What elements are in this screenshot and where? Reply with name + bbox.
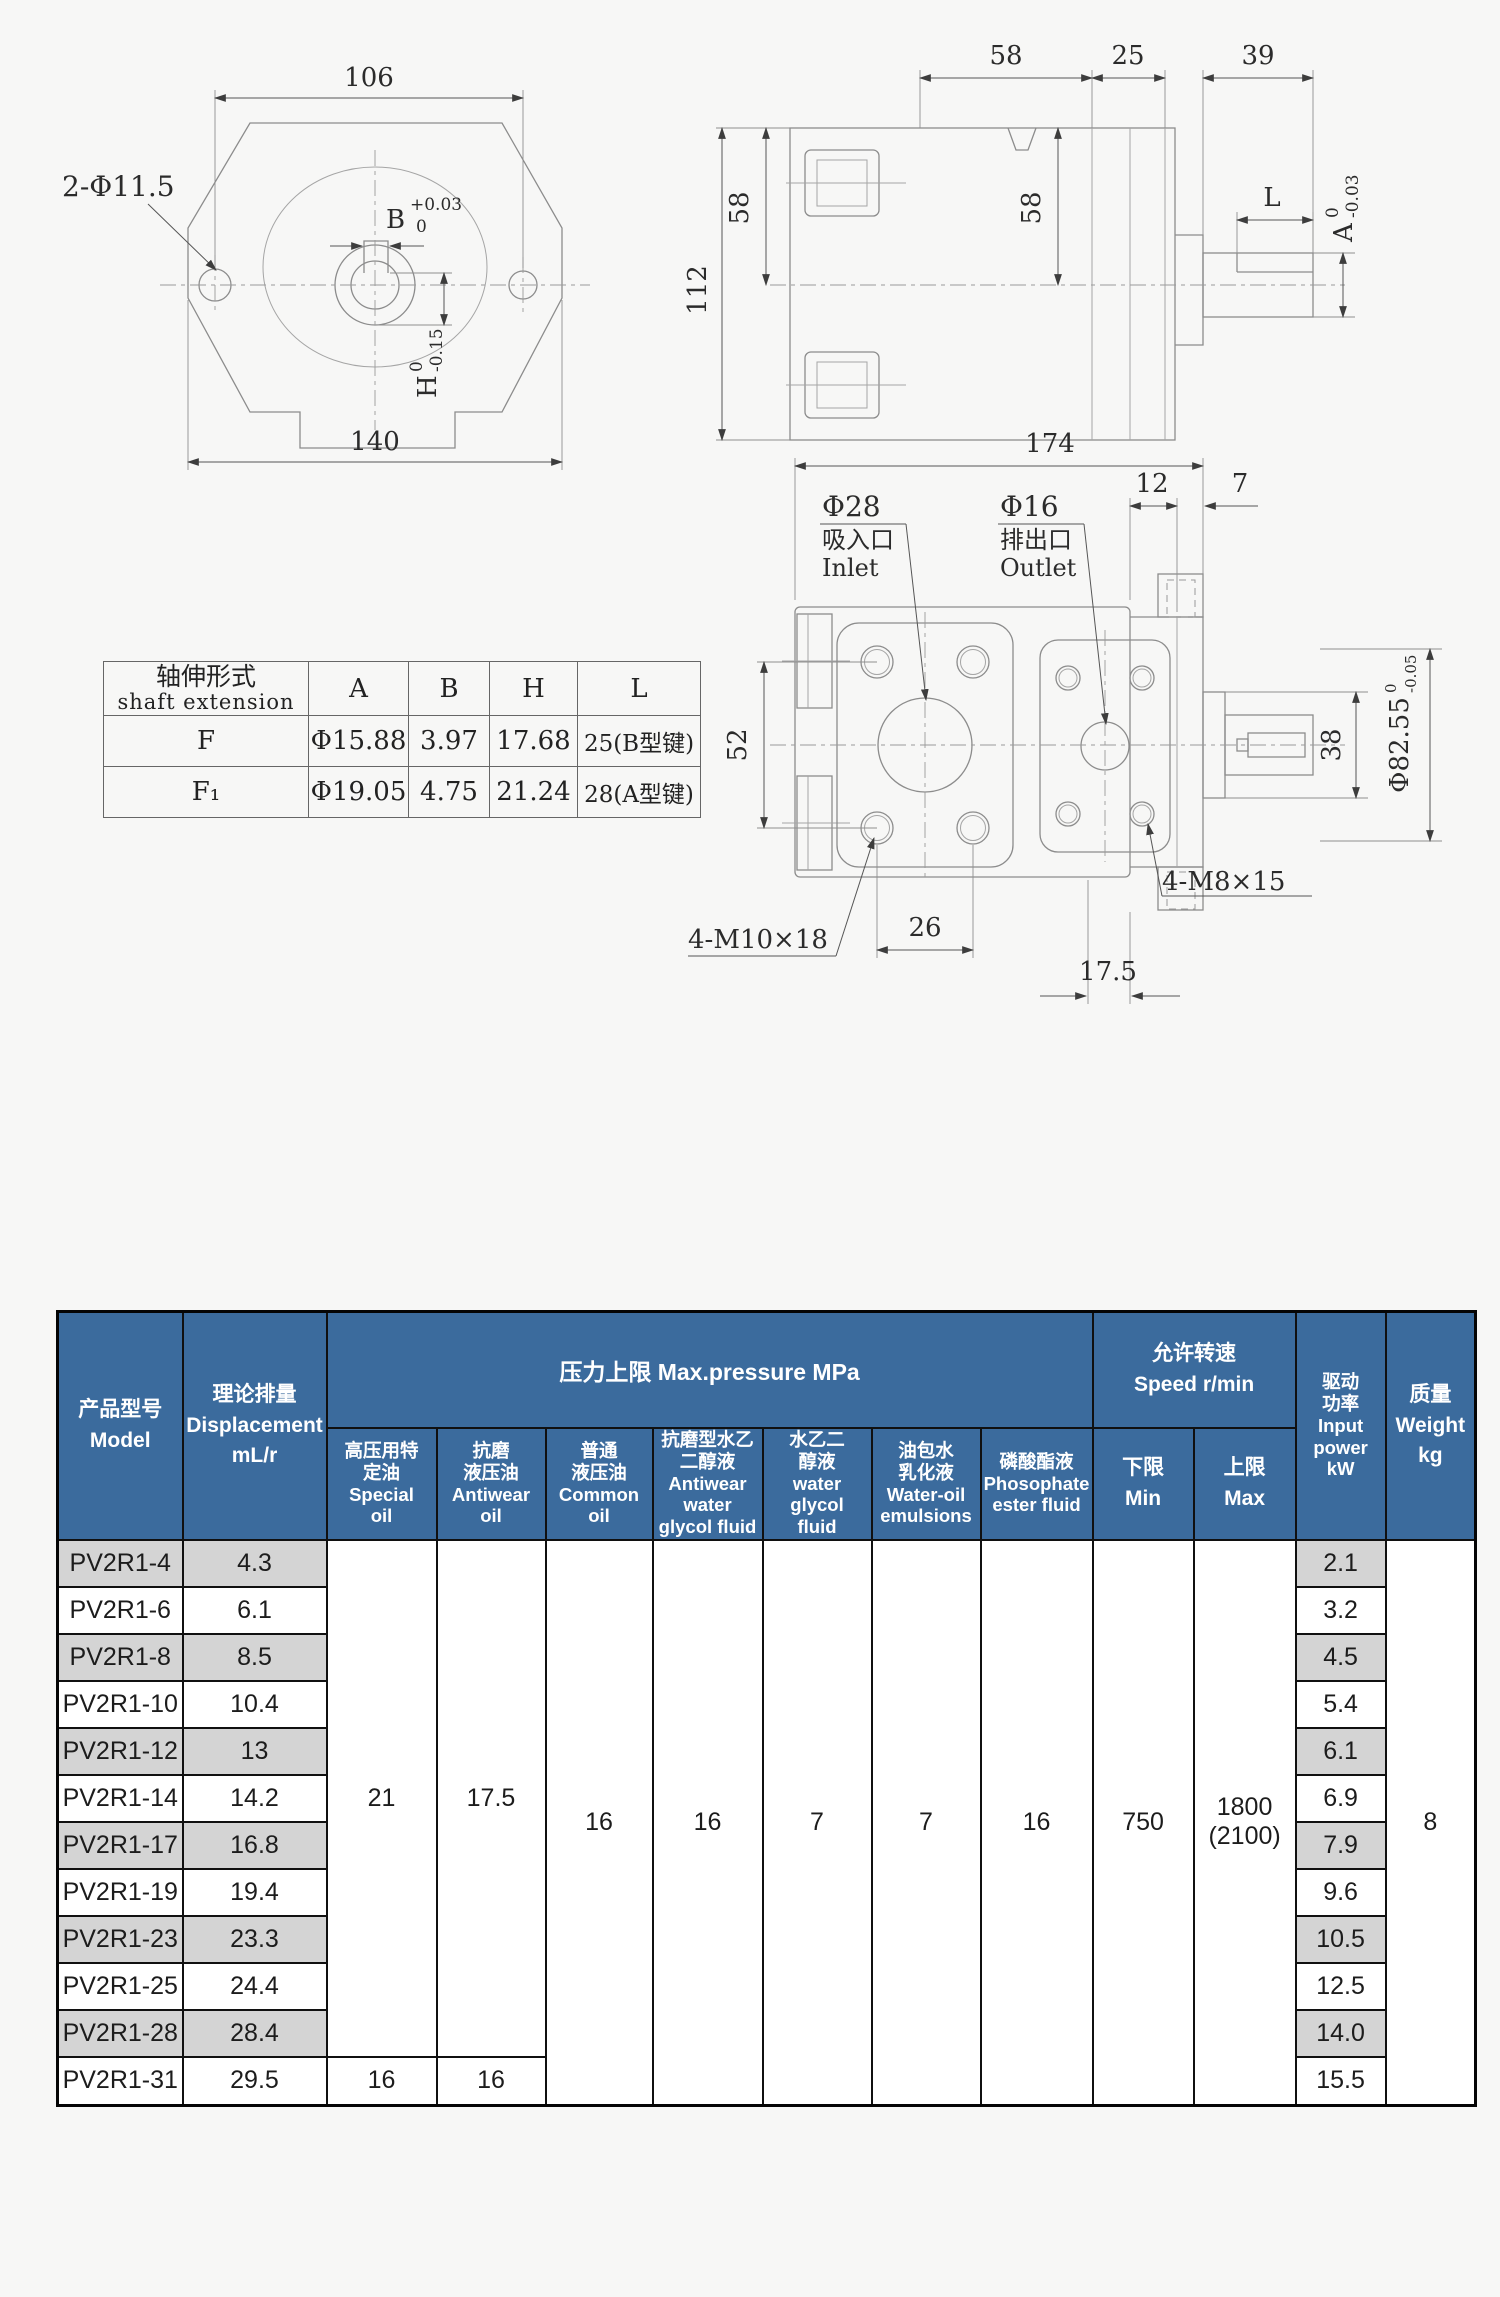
water-glycol-merged-cell: 7: [763, 1540, 872, 2106]
shaft-type: F: [104, 716, 309, 767]
power-cell: 4.5: [1296, 1634, 1386, 1681]
shaft-h: 17.68: [490, 716, 578, 767]
bottom-dim-spigot: Φ82.55: [1385, 697, 1415, 793]
front-dim-h: H: [413, 375, 443, 398]
weight-merged-cell: 8: [1386, 1540, 1476, 2106]
model-cell: PV2R1-25: [58, 1963, 183, 2010]
header-speed-min: 下限 Min: [1093, 1428, 1194, 1540]
shaft-title-cn: 轴伸形式: [104, 664, 308, 690]
side-view: 58 25 39 112 58 58 L: [683, 41, 1363, 440]
bottom-view-dimensions: 174 12 7 52 Φ28 吸入口 Inlet Φ16 排出口 Outlet: [688, 429, 1442, 1004]
header-model: 产品型号 Model: [58, 1312, 183, 1540]
side-dim-58-left: 58: [725, 191, 755, 224]
displacement-cell: 13: [183, 1728, 327, 1775]
header-water-oil: 油包水 乳化液 Water-oil emulsions: [872, 1428, 981, 1540]
side-dim-112: 112: [683, 265, 713, 315]
side-dim-58-right: 58: [1017, 191, 1047, 224]
model-cell: PV2R1-23: [58, 1916, 183, 1963]
bottom-dim-17-5: 17.5: [1079, 957, 1137, 987]
spec-header-row-1: 产品型号 Model 理论排量 Displacement mL/r 压力上限 M…: [58, 1312, 1476, 1428]
bottom-dim-12: 12: [1135, 469, 1168, 499]
front-dim-b-tol-top: +0.03: [410, 195, 462, 215]
header-power: 驱动 功率 Input power kW: [1296, 1312, 1386, 1540]
shaft-a: Φ19.05: [309, 767, 409, 818]
shaft-h: 21.24: [490, 767, 578, 818]
model-cell: PV2R1-31: [58, 2057, 183, 2106]
displacement-cell: 8.5: [183, 1634, 327, 1681]
power-cell: 6.1: [1296, 1728, 1386, 1775]
inlet-diameter: Φ28: [822, 490, 881, 523]
bottom-view-geometry: [770, 574, 1345, 910]
displacement-cell: 14.2: [183, 1775, 327, 1822]
displacement-cell: 28.4: [183, 2010, 327, 2057]
outlet-label-en: Outlet: [1000, 554, 1077, 582]
power-cell: 5.4: [1296, 1681, 1386, 1728]
bottom-view: 174 12 7 52 Φ28 吸入口 Inlet Φ16 排出口 Outlet: [688, 429, 1442, 1004]
shaft-b: 4.75: [409, 767, 490, 818]
bottom-dim-26: 26: [908, 913, 941, 943]
front-dim-h-tol-top: 0: [407, 361, 427, 372]
header-antiwear-glycol: 抗磨型水乙 二醇液 Antiwear water glycol fluid: [653, 1428, 763, 1540]
model-cell: PV2R1-12: [58, 1728, 183, 1775]
shaft-row-f: F Φ15.88 3.97 17.68 25(B型键): [104, 716, 701, 767]
shaft-l: 28(A型键): [578, 767, 701, 818]
model-cell: PV2R1-19: [58, 1869, 183, 1916]
front-dim-h-tol-bottom: -0.15: [427, 328, 447, 372]
bolt-label-left: 4-M10×18: [688, 925, 828, 955]
header-displacement: 理论排量 Displacement mL/r: [183, 1312, 327, 1540]
side-dim-a-tol-bottom: -0.03: [1343, 174, 1363, 218]
side-dim-a-tol-top: 0: [1323, 207, 1343, 218]
shaft-type: F₁: [104, 767, 309, 818]
side-dim-25: 25: [1111, 41, 1144, 71]
shaft-extension-table: 轴伸形式 shaft extension A B H L F Φ15.88 3.…: [103, 661, 701, 818]
displacement-cell: 19.4: [183, 1869, 327, 1916]
header-phosphate: 磷酸酯液 Phosophate ester fluid: [981, 1428, 1093, 1540]
shaft-header-h: H: [490, 662, 578, 716]
model-cell: PV2R1-28: [58, 2010, 183, 2057]
spec-table: 产品型号 Model 理论排量 Displacement mL/r 压力上限 M…: [56, 1310, 1477, 2107]
phosphate-merged-cell: 16: [981, 1540, 1093, 2106]
displacement-cell: 24.4: [183, 1963, 327, 2010]
power-cell: 7.9: [1296, 1822, 1386, 1869]
shaft-title-en: shaft extension: [104, 691, 308, 713]
shaft-header-title: 轴伸形式 shaft extension: [104, 662, 309, 716]
header-pressure-banner: 压力上限 Max.pressure MPa: [327, 1312, 1093, 1428]
displacement-cell: 10.4: [183, 1681, 327, 1728]
datasheet-page: 106 140 2-Φ11.5 B +0.03 0 H 0 -0.15: [0, 0, 1500, 2297]
antiwear-glycol-merged-cell: 16: [653, 1540, 763, 2106]
inlet-label-cn: 吸入口: [822, 526, 894, 554]
model-cell: PV2R1-4: [58, 1540, 183, 1587]
power-cell: 12.5: [1296, 1963, 1386, 2010]
outlet-diameter: Φ16: [1000, 490, 1059, 523]
bottom-dim-spigot-tol-bottom: -0.05: [1402, 655, 1420, 693]
spec-row: PV2R1-4 4.3 21 17.5 16 16 7 7 16 750 180…: [58, 1540, 1476, 1587]
displacement-cell: 23.3: [183, 1916, 327, 1963]
model-cell: PV2R1-17: [58, 1822, 183, 1869]
displacement-cell: 6.1: [183, 1587, 327, 1634]
model-cell: PV2R1-10: [58, 1681, 183, 1728]
header-water-glycol: 水乙二 醇液 water glycol fluid: [763, 1428, 872, 1540]
special-oil-last-cell: 16: [327, 2057, 437, 2106]
front-dim-106: 106: [344, 63, 394, 93]
power-cell: 14.0: [1296, 2010, 1386, 2057]
shaft-l: 25(B型键): [578, 716, 701, 767]
power-cell: 3.2: [1296, 1587, 1386, 1634]
side-dim-l: L: [1263, 183, 1280, 213]
model-cell: PV2R1-14: [58, 1775, 183, 1822]
power-cell: 6.9: [1296, 1775, 1386, 1822]
shaft-header-a: A: [309, 662, 409, 716]
shaft-table-header-row: 轴伸形式 shaft extension A B H L: [104, 662, 701, 716]
bottom-dim-52: 52: [723, 728, 753, 761]
header-common-oil: 普通 液压油 Common oil: [546, 1428, 653, 1540]
bottom-dim-spigot-tol-top: 0: [1382, 683, 1400, 693]
antiwear-oil-last-cell: 16: [437, 2057, 546, 2106]
bottom-dim-38: 38: [1317, 728, 1347, 761]
power-cell: 15.5: [1296, 2057, 1386, 2106]
antiwear-oil-merged-cell: 17.5: [437, 1540, 546, 2057]
special-oil-merged-cell: 21: [327, 1540, 437, 2057]
model-cell: PV2R1-6: [58, 1587, 183, 1634]
inlet-label-en: Inlet: [822, 554, 879, 582]
front-view-geometry: [160, 123, 590, 448]
speed-max-merged-cell: 1800 (2100): [1194, 1540, 1296, 2106]
displacement-cell: 29.5: [183, 2057, 327, 2106]
front-holes-label: 2-Φ11.5: [62, 170, 175, 203]
header-special-oil: 高压用特 定油 Special oil: [327, 1428, 437, 1540]
shaft-header-l: L: [578, 662, 701, 716]
shaft-b: 3.97: [409, 716, 490, 767]
header-speed-banner: 允许转速 Speed r/min: [1093, 1312, 1296, 1428]
header-weight: 质量 Weight kg: [1386, 1312, 1476, 1540]
side-dim-39: 39: [1241, 41, 1274, 71]
header-speed-max: 上限 Max: [1194, 1428, 1296, 1540]
power-cell: 2.1: [1296, 1540, 1386, 1587]
outlet-label-cn: 排出口: [1000, 526, 1072, 554]
side-dim-a: A: [1329, 222, 1359, 243]
power-cell: 9.6: [1296, 1869, 1386, 1916]
front-dim-b-tol-bottom: 0: [416, 217, 427, 237]
power-cell: 10.5: [1296, 1916, 1386, 1963]
bolt-label-right: 4-M8×15: [1162, 867, 1285, 897]
front-view: 106 140 2-Φ11.5 B +0.03 0 H 0 -0.15: [62, 63, 590, 470]
water-oil-merged-cell: 7: [872, 1540, 981, 2106]
front-dim-b: B: [386, 205, 405, 235]
side-view-dimensions: 58 25 39 112 58 58 L: [683, 41, 1363, 440]
bottom-dim-7: 7: [1232, 469, 1249, 499]
speed-min-merged-cell: 750: [1093, 1540, 1194, 2106]
engineering-drawings: 106 140 2-Φ11.5 B +0.03 0 H 0 -0.15: [0, 0, 1500, 1030]
common-oil-merged-cell: 16: [546, 1540, 653, 2106]
header-antiwear-oil: 抗磨 液压油 Antiwear oil: [437, 1428, 546, 1540]
shaft-header-b: B: [409, 662, 490, 716]
shaft-a: Φ15.88: [309, 716, 409, 767]
model-cell: PV2R1-8: [58, 1634, 183, 1681]
side-dim-58-top: 58: [989, 41, 1022, 71]
shaft-row-f1: F₁ Φ19.05 4.75 21.24 28(A型键): [104, 767, 701, 818]
displacement-cell: 16.8: [183, 1822, 327, 1869]
front-dim-140: 140: [350, 427, 400, 457]
bottom-dim-174: 174: [1025, 429, 1075, 459]
displacement-cell: 4.3: [183, 1540, 327, 1587]
